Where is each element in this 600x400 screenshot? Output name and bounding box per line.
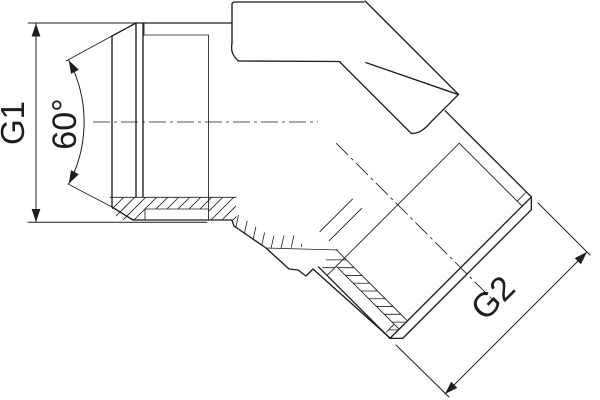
dimension-angle: 60° (46, 36, 112, 207)
g1-arrow-top (32, 24, 41, 37)
g1-label: G1 (0, 101, 31, 145)
angled-port-outline (209, 1, 580, 372)
technical-drawing-page: G1 60° G2 (0, 0, 600, 400)
thread-hatch-junction (230, 204, 311, 253)
g1-arrow-bottom (32, 209, 41, 222)
angle-arrow-bottom (65, 170, 79, 186)
g2-label: G2 (464, 269, 523, 328)
dimension-g1: G1 (0, 23, 207, 222)
technical-drawing: G1 60° G2 (0, 0, 600, 400)
hex-body-outline (232, 2, 364, 62)
centerline-angled-port (336, 143, 494, 301)
thread-hatch-left (98, 196, 257, 223)
angle-label: 60° (46, 98, 84, 149)
